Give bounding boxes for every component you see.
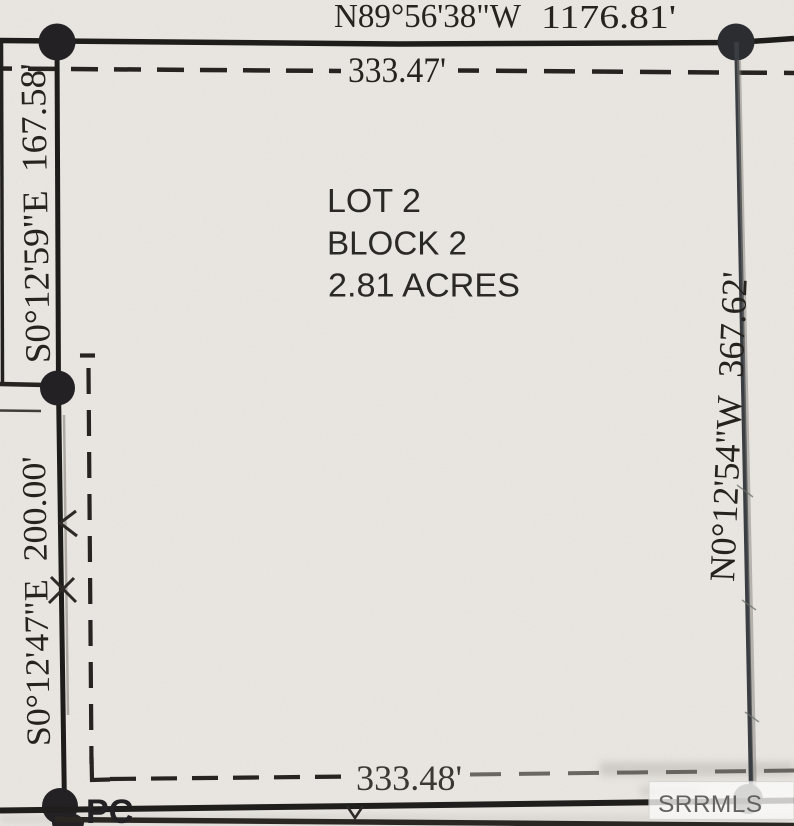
- svg-text:N89°56'38"W: N89°56'38"W: [334, 0, 522, 35]
- svg-text:PC: PC: [86, 793, 133, 826]
- svg-text:333.48': 333.48': [356, 758, 462, 798]
- svg-text:2.81 ACRES: 2.81 ACRES: [328, 267, 520, 304]
- svg-text:333.47': 333.47': [348, 50, 446, 90]
- svg-text:LOT 2: LOT 2: [327, 182, 421, 219]
- svg-text:S0°12'59"E 167.58': S0°12'59"E 167.58': [13, 63, 58, 364]
- svg-text:BLOCK 2: BLOCK 2: [327, 225, 467, 262]
- svg-text:1176.81': 1176.81': [541, 0, 676, 36]
- svg-text:SRRMLS: SRRMLS: [658, 791, 763, 818]
